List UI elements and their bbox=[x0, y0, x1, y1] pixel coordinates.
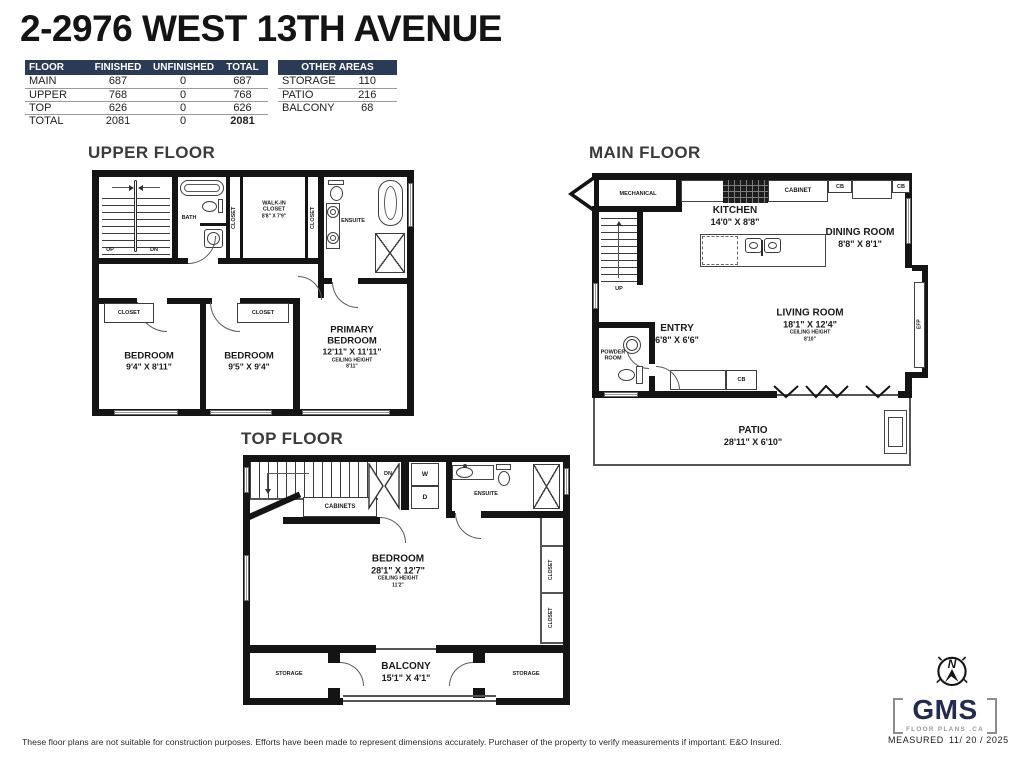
wall bbox=[436, 645, 563, 653]
window bbox=[593, 283, 598, 309]
closet-box: CLOSET bbox=[104, 303, 154, 323]
wall bbox=[200, 223, 226, 226]
dining-room-label: DINING ROOM bbox=[826, 227, 895, 239]
primary-bedroom-label: PRIMARY BEDROOM bbox=[306, 325, 398, 347]
wall bbox=[473, 688, 485, 698]
measured-date: 11/ 20 / 2025 bbox=[949, 735, 1009, 745]
table-row: PATIO216 bbox=[278, 88, 397, 101]
toilet-tank bbox=[636, 366, 643, 384]
wall bbox=[898, 391, 912, 398]
balcony-railing bbox=[343, 695, 496, 697]
kitchen-label: KITCHEN bbox=[713, 205, 757, 217]
other-areas-table: OTHER AREAS STORAGE110 PATIO216 BALCONY6… bbox=[278, 60, 397, 114]
wall bbox=[637, 212, 643, 285]
stair-handrail bbox=[134, 180, 137, 252]
wall bbox=[324, 278, 332, 284]
kitchen-dim: 14'0" X 8'8" bbox=[711, 217, 760, 227]
balcony-label: BALCONY bbox=[381, 661, 430, 673]
wall bbox=[481, 511, 563, 518]
patio-fixture-inner bbox=[888, 417, 903, 447]
window bbox=[302, 410, 390, 415]
toilet-tank bbox=[496, 464, 511, 470]
dishwasher-icon bbox=[702, 236, 738, 265]
balcony-door-track bbox=[376, 648, 436, 650]
accordion-door-icon bbox=[773, 385, 799, 399]
ceiling-height-label: CEILING HEIGHT bbox=[790, 330, 831, 336]
kitchen-counter bbox=[681, 180, 725, 202]
ensuite-label: ENSUITE bbox=[474, 491, 498, 497]
main-floor-title: MAIN FLOOR bbox=[589, 143, 701, 163]
wall bbox=[666, 391, 777, 398]
entry-label: ENTRY bbox=[660, 323, 694, 335]
closet-wall bbox=[540, 545, 563, 547]
closet-wall bbox=[540, 592, 563, 594]
page-title: 2-2976 WEST 13TH AVENUE bbox=[20, 8, 502, 50]
wall bbox=[318, 177, 324, 258]
table-row: MAIN687 0687 bbox=[25, 75, 268, 88]
window bbox=[210, 410, 272, 415]
bedroom-dim: 28'1" X 12'7" bbox=[371, 565, 425, 575]
patio-outline bbox=[593, 464, 911, 466]
bedroom1-dim: 9'4" X 8'11" bbox=[126, 363, 172, 373]
table-row: BALCONY68 bbox=[278, 101, 397, 114]
walkin-closet-dim: 8'8" X 7'9" bbox=[262, 214, 286, 220]
toilet-icon bbox=[618, 369, 635, 381]
wall bbox=[293, 298, 300, 409]
entry-dim: 6'8" X 6'6" bbox=[655, 335, 699, 345]
table-header-row: FLOOR FINISHED UNFINISHED TOTAL bbox=[25, 60, 268, 75]
toilet-icon bbox=[330, 186, 343, 201]
window bbox=[114, 410, 178, 415]
door-arc bbox=[332, 282, 358, 308]
table-header-row: OTHER AREAS bbox=[278, 60, 397, 75]
col-header: FLOOR bbox=[25, 60, 87, 75]
sink-icon bbox=[745, 238, 762, 253]
wall bbox=[250, 645, 376, 653]
table-total-row: TOTAL2081 02081 bbox=[25, 114, 268, 127]
door-arc bbox=[449, 662, 473, 686]
compass-needle bbox=[945, 669, 959, 683]
storage-label: STORAGE bbox=[512, 671, 539, 677]
closet-label: CLOSET bbox=[546, 551, 556, 589]
wall bbox=[592, 322, 655, 328]
powder-room-label: POWDER ROOM bbox=[596, 350, 630, 363]
closet-wall bbox=[540, 518, 542, 643]
patio-label: PATIO bbox=[738, 425, 767, 437]
table-row: STORAGE110 bbox=[278, 75, 397, 88]
faucet-icon bbox=[761, 240, 763, 256]
col-header: UNFINISHED bbox=[149, 60, 217, 75]
patio-dim: 28'11" X 6'10" bbox=[724, 437, 782, 447]
logo-sub-text: FLOOR PLANS .CA bbox=[895, 726, 995, 733]
bedroom2-dim: 9'5" X 9'4" bbox=[228, 363, 269, 373]
balcony-dim: 15'1" X 4'1" bbox=[382, 673, 431, 683]
shower-icon bbox=[375, 233, 405, 273]
closet-label: CLOSET bbox=[308, 200, 318, 236]
cabinet-box: CB bbox=[828, 180, 852, 193]
wall bbox=[283, 517, 380, 524]
wall bbox=[446, 511, 455, 518]
bathtub-icon bbox=[378, 180, 403, 226]
dryer-box: D bbox=[411, 486, 439, 509]
double-door-icon bbox=[367, 463, 401, 510]
wall bbox=[358, 278, 407, 284]
top-floor-plan: DN CABINETS W D ENSUITE CLOSET CLOSET BE… bbox=[243, 455, 570, 705]
wall bbox=[328, 653, 340, 663]
cabinet-box: CB bbox=[726, 370, 757, 390]
wall bbox=[200, 298, 206, 409]
cabinet-box: CB bbox=[892, 180, 910, 193]
wall bbox=[473, 653, 485, 663]
window bbox=[906, 198, 911, 244]
kitchen-counter bbox=[852, 180, 892, 199]
sink-icon bbox=[327, 206, 339, 218]
ceiling-height-value: 11'2" bbox=[392, 583, 404, 589]
door-arc bbox=[188, 236, 216, 264]
table-row: TOP626 0626 bbox=[25, 101, 268, 114]
living-room-label: LIVING ROOM bbox=[776, 307, 843, 319]
mechanical-label: MECHANICAL bbox=[620, 191, 657, 197]
closet-wall bbox=[540, 642, 563, 644]
stairs-up-label: UP bbox=[106, 247, 114, 253]
stair-direction-line bbox=[618, 226, 619, 278]
wall bbox=[328, 688, 340, 698]
patio-outline bbox=[593, 398, 595, 465]
arrow-up-icon bbox=[616, 221, 622, 226]
wall bbox=[243, 455, 570, 462]
sink-icon bbox=[327, 232, 339, 244]
bedroom-label: BEDROOM bbox=[372, 553, 424, 565]
cabinet-box: CABINET bbox=[768, 180, 828, 202]
stair-direction-line bbox=[112, 187, 130, 188]
stair-direction-line bbox=[142, 187, 160, 188]
wall bbox=[496, 698, 570, 705]
walkin-closet-label: WALK-IN CLOSET bbox=[251, 200, 297, 213]
floor-plan-sheet: { "title": "2-2976 WEST 13TH AVENUE", "t… bbox=[0, 0, 1024, 768]
stairs-down-label: DN bbox=[150, 247, 158, 253]
toilet-tank bbox=[328, 180, 344, 185]
stairs-up-label: UP bbox=[615, 286, 623, 292]
toilet-icon bbox=[498, 471, 510, 486]
col-header: FINISHED bbox=[87, 60, 149, 75]
accordion-door-icon bbox=[865, 385, 891, 399]
measured-label: MEASURED bbox=[888, 735, 944, 745]
stove-icon bbox=[723, 180, 768, 203]
balcony-railing bbox=[343, 700, 496, 702]
toilet-icon bbox=[202, 201, 217, 212]
ceiling-height-value: 8'11" bbox=[346, 365, 358, 371]
arrow-down-icon bbox=[265, 489, 271, 494]
door-arc bbox=[455, 513, 481, 539]
storage-label: STORAGE bbox=[275, 671, 302, 677]
wall bbox=[92, 170, 99, 416]
sink-icon bbox=[456, 467, 473, 478]
wall bbox=[218, 258, 324, 264]
window bbox=[244, 555, 249, 601]
closet-label: CLOSET bbox=[229, 200, 239, 236]
arrow-left-icon bbox=[138, 185, 143, 191]
shower-icon bbox=[533, 464, 560, 509]
disclaimer-text: These floor plans are not suitable for c… bbox=[22, 737, 782, 747]
upper-floor-plan: UP DN BATH CLOSET WALK-IN CLOSET8'8" X 7… bbox=[92, 170, 414, 416]
faucet-icon bbox=[463, 464, 467, 468]
wall bbox=[649, 376, 655, 391]
washer-box: W bbox=[411, 463, 439, 486]
door-arc bbox=[340, 662, 364, 686]
wall bbox=[912, 372, 928, 378]
primary-bedroom-dim: 12'11" X 11'11" bbox=[323, 347, 382, 357]
wall bbox=[172, 177, 178, 260]
wall bbox=[401, 462, 409, 510]
ceiling-height-label: CEILING HEIGHT bbox=[378, 576, 419, 582]
bathtub-icon bbox=[180, 180, 224, 196]
window bbox=[564, 468, 569, 495]
sink-icon bbox=[764, 238, 781, 253]
logo-brand-text: GMS bbox=[901, 694, 989, 726]
wall bbox=[99, 258, 188, 264]
top-floor-title: TOP FLOOR bbox=[241, 429, 343, 449]
window bbox=[408, 183, 413, 227]
accordion-door-icon bbox=[805, 385, 849, 399]
door-arc bbox=[210, 302, 240, 332]
upper-floor-title: UPPER FLOOR bbox=[88, 143, 215, 163]
arrow-right-icon bbox=[129, 185, 134, 191]
patio-outline bbox=[909, 398, 911, 465]
fireplace-label: EFP bbox=[915, 298, 924, 350]
bath-label: BATH bbox=[182, 215, 197, 221]
ceiling-height-value: 8'10" bbox=[804, 337, 816, 343]
wall bbox=[649, 328, 655, 364]
col-header: TOTAL bbox=[217, 60, 268, 75]
wall bbox=[240, 177, 243, 258]
toilet-tank bbox=[218, 199, 223, 213]
window bbox=[244, 467, 249, 493]
cabinets-box: CABINETS bbox=[303, 497, 377, 517]
dining-room-dim: 8'8" X 8'1" bbox=[838, 239, 882, 249]
compass-logo-icon: N bbox=[928, 649, 976, 697]
wall bbox=[592, 173, 912, 180]
closet-box: CLOSET bbox=[237, 303, 289, 323]
floor-area-table: FLOOR FINISHED UNFINISHED TOTAL MAIN687 … bbox=[25, 60, 268, 127]
ensuite-label: ENSUITE bbox=[341, 218, 365, 224]
col-header: OTHER AREAS bbox=[278, 60, 397, 75]
closet-label: CLOSET bbox=[546, 599, 556, 637]
stair-direction-line bbox=[267, 473, 309, 474]
wall bbox=[92, 170, 414, 177]
window bbox=[604, 392, 638, 397]
door-arc bbox=[380, 517, 406, 543]
compass-n-letter: N bbox=[948, 657, 957, 671]
wall bbox=[243, 698, 343, 705]
living-room-dim: 18'1" X 12'4" bbox=[783, 319, 837, 329]
table-row: UPPER768 0768 bbox=[25, 88, 268, 101]
main-floor-plan: EFP MECHANICAL UP CABINET CB CB KITCHEN1… bbox=[568, 170, 940, 470]
